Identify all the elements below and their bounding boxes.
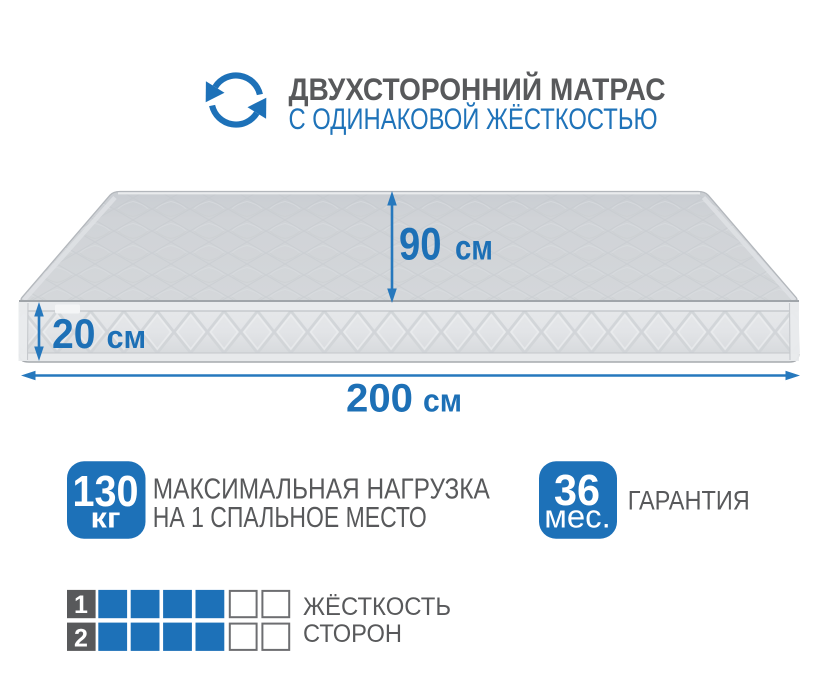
svg-text:СТОРОН: СТОРОН: [303, 620, 402, 648]
svg-text:200см: 200см: [346, 377, 462, 421]
svg-text:НА 1 СПАЛЬНОЕ МЕСТО: НА 1 СПАЛЬНОЕ МЕСТО: [153, 502, 427, 534]
svg-text:мес.: мес.: [544, 498, 611, 534]
svg-text:МАКСИМАЛЬНАЯ НАГРУЗКА: МАКСИМАЛЬНАЯ НАГРУЗКА: [153, 474, 491, 506]
svg-text:С ОДИНАКОВОЙ ЖЁСТКОСТЬЮ: С ОДИНАКОВОЙ ЖЁСТКОСТЬЮ: [289, 102, 658, 136]
svg-text:2: 2: [74, 625, 88, 653]
svg-text:ГАРАНТИЯ: ГАРАНТИЯ: [628, 486, 750, 516]
svg-text:ЖЁСТКОСТЬ: ЖЁСТКОСТЬ: [303, 593, 451, 621]
svg-text:кг: кг: [91, 503, 121, 535]
svg-text:ДВУХСТОРОННИЙ МАТРАС: ДВУХСТОРОННИЙ МАТРАС: [289, 71, 666, 107]
svg-text:1: 1: [74, 591, 88, 619]
